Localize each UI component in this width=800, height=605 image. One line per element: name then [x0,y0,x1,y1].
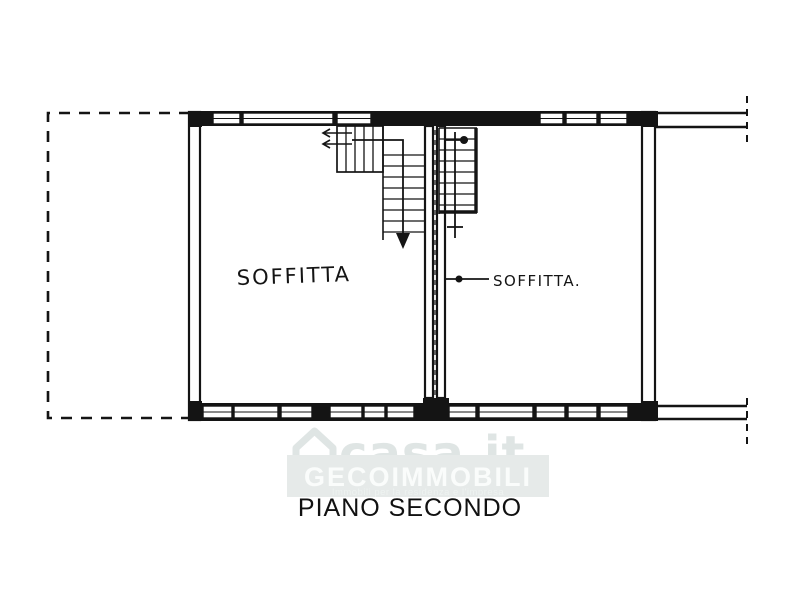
window [337,113,371,124]
window [449,406,476,418]
window [568,406,597,418]
walk-line-start-dot [460,136,468,144]
window [243,113,333,124]
top-wall [188,111,658,126]
window [281,406,312,418]
window [540,113,563,124]
window [234,406,278,418]
window [479,406,533,418]
right-wall [641,111,658,421]
plan-title: PIANO SECONDO [298,494,522,522]
window [213,113,240,124]
stair-down-arrow [396,233,410,249]
middle-wall [423,126,449,421]
right-wing-walls [655,96,747,444]
window [536,406,565,418]
window [203,406,232,418]
room-label-right-leader [446,276,489,283]
room-label-left: SOFFITTA [236,262,351,290]
window [600,113,627,124]
terrace-dashed-outline [48,113,190,418]
room-label-right: SOFFITTA. [493,272,581,290]
staircase-left [323,126,424,249]
window [566,113,597,124]
window [330,406,362,418]
watermark: casa.it GECOIMMOBILI Immobili per la res… [287,426,549,498]
page: casa.it GECOIMMOBILI Immobili per la res… [0,0,800,600]
left-wall [188,111,202,421]
window [387,406,414,418]
window [364,406,385,418]
floor-plan: casa.it GECOIMMOBILI Immobili per la res… [0,0,800,600]
window [600,406,628,418]
